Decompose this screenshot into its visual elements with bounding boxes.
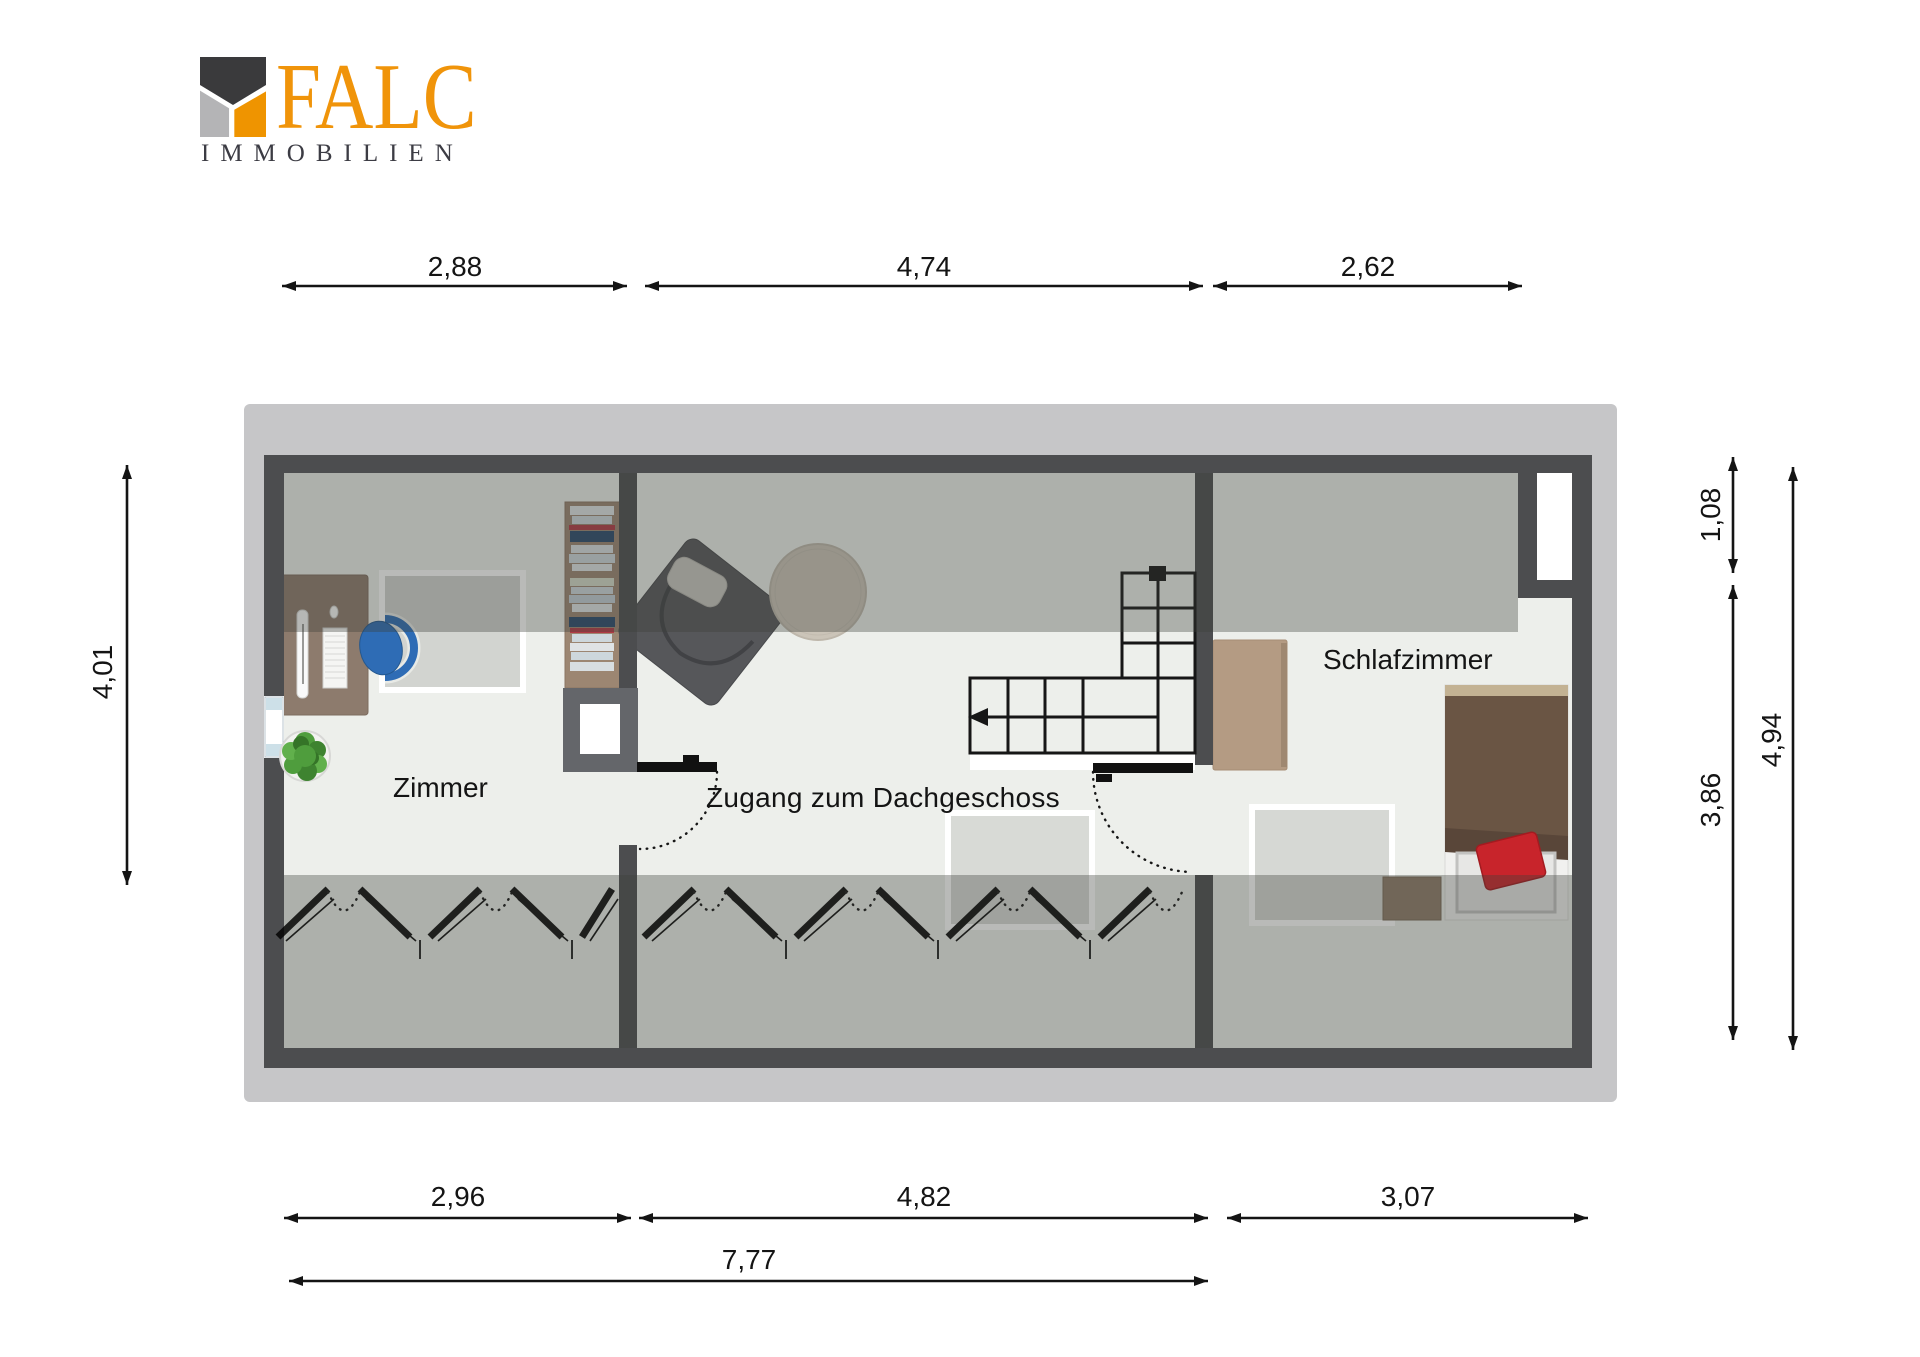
sloped-ceiling-zone-top — [284, 473, 1518, 632]
dim-top-2: 4,74 — [897, 253, 952, 281]
logo-subtitle-text: IMMOBILIEN — [201, 140, 464, 168]
room-label-schlafzimmer: Schlafzimmer — [1323, 645, 1493, 676]
dim-bottom-2: 4,82 — [897, 1183, 952, 1211]
keyboard — [323, 628, 347, 688]
falc-logo-icon — [200, 57, 266, 137]
room-label-zimmer: Zimmer — [393, 773, 488, 804]
wall-top — [264, 455, 1592, 473]
wall-bottom — [264, 1048, 1592, 1068]
wall-right — [1572, 455, 1592, 1068]
sideboard — [1213, 640, 1287, 770]
dim-top-1: 2,88 — [428, 253, 483, 281]
dim-bottom-1: 2,96 — [431, 1183, 486, 1211]
dim-right-2: 3,86 — [1697, 773, 1725, 828]
dim-total-width: 7,77 — [722, 1246, 777, 1274]
dim-right-3: 4,94 — [1758, 713, 1786, 768]
dim-right-1: 1,08 — [1697, 488, 1725, 543]
sloped-ceiling-zone-bottom — [284, 875, 1572, 1048]
floor-plan-drawing — [0, 0, 1920, 1357]
chimney-niche — [1518, 473, 1572, 598]
dim-top-3: 2,62 — [1341, 253, 1396, 281]
logo-brand-text: FALC — [276, 50, 477, 144]
bed-headboard — [1445, 685, 1568, 697]
floor-plan-page: FALC IMMOBILIEN Zimmer Zugang zum Dachge… — [0, 0, 1920, 1357]
dim-bottom-3: 3,07 — [1381, 1183, 1436, 1211]
dim-left-1: 4,01 — [89, 645, 117, 700]
room-label-zugang: Zugang zum Dachgeschoss — [706, 783, 1060, 814]
bed-duvet — [1445, 696, 1568, 842]
built-in-cupboard — [563, 688, 638, 772]
plant — [280, 731, 330, 781]
